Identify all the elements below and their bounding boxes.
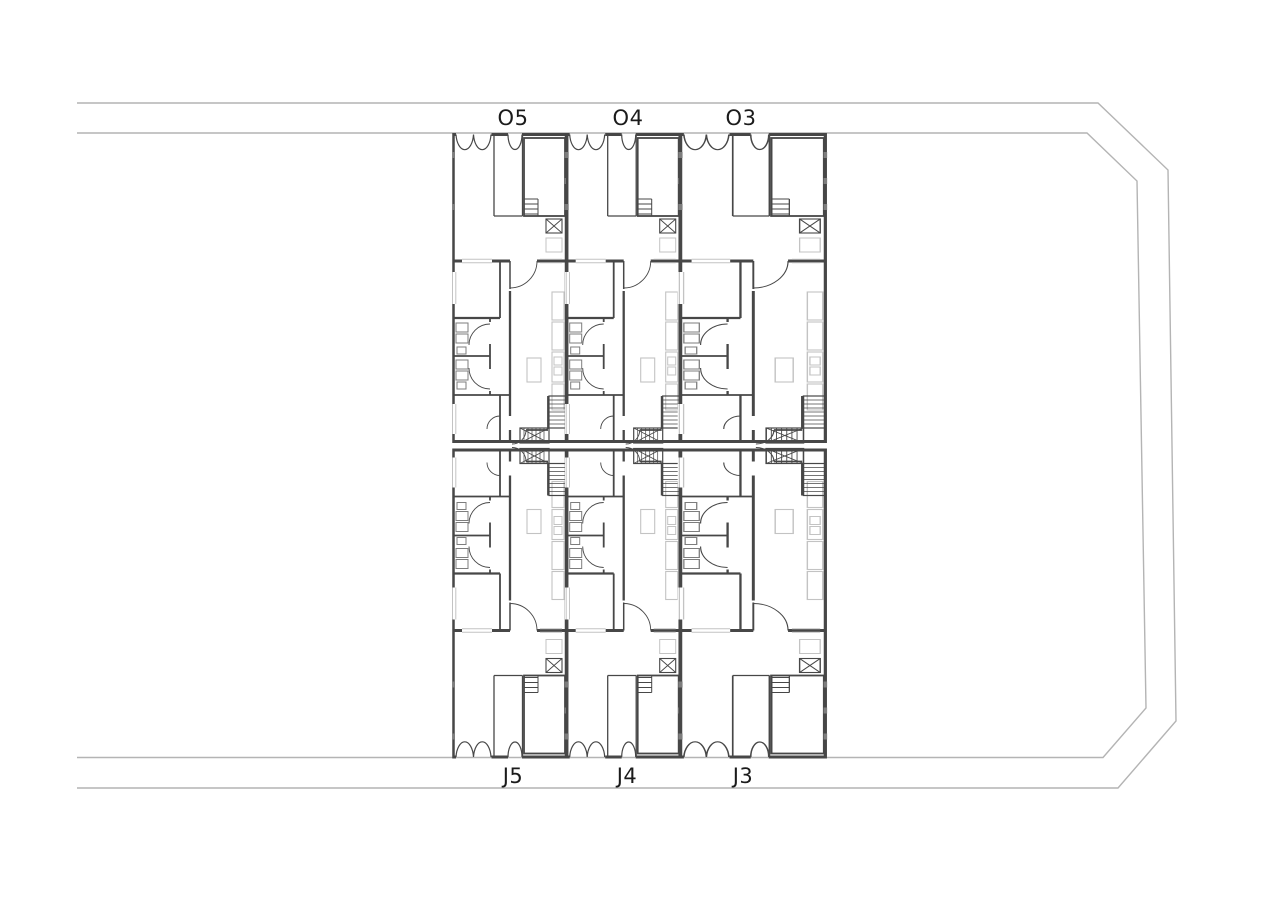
floor-plan-drawing: O5 O4 O3 J5 J4 J3 [0,0,1280,904]
site-boundary-outer [77,103,1176,788]
unit-plan-O5 [451,133,567,444]
unit-label-J5: J5 [501,764,524,788]
unit-labels: O5 O4 O3 J5 J4 J3 [498,106,757,788]
housing-block [451,133,827,759]
unit-label-J3: J3 [731,764,754,788]
unit-label-O4: O4 [613,106,644,130]
unit-plan-J5 [451,448,567,759]
unit-plan-J4 [565,448,681,759]
site-boundary [77,103,1176,788]
unit-label-O5: O5 [498,106,529,130]
unit-label-O3: O3 [726,106,757,130]
unit-label-J4: J4 [615,764,638,788]
unit-plan-J3 [678,448,827,759]
unit-plan-O3 [678,133,827,444]
unit-plan-O4 [565,133,681,444]
site-boundary-inner [77,133,1146,758]
floor-plan-page: O5 O4 O3 J5 J4 J3 [0,0,1280,904]
